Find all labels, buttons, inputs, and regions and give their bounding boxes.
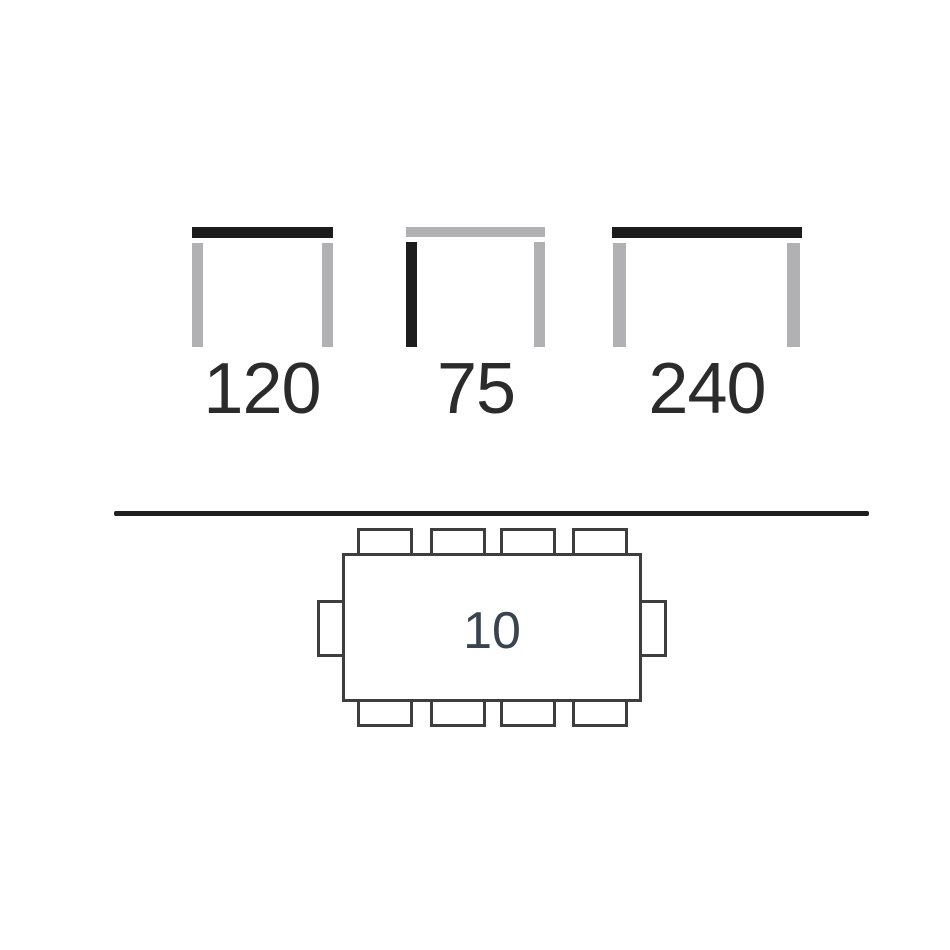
section-divider-line: [114, 511, 869, 516]
dimension-value-label: 240: [617, 353, 797, 425]
table-leg-left-icon: [406, 242, 417, 347]
tabletop-bar-icon: [612, 227, 802, 238]
table-leg-right-icon: [787, 243, 800, 347]
table-leg-left-icon: [613, 243, 626, 347]
dimension-value-label: 75: [386, 353, 566, 425]
tabletop-bar-icon: [192, 227, 333, 238]
table-leg-left-icon: [192, 243, 203, 347]
dimension-value-label: 120: [172, 353, 352, 425]
seating-capacity-label: 10: [463, 594, 521, 661]
product-dimensions-diagram: 120 75 240 10: [0, 0, 950, 950]
tabletop-bar-icon: [406, 227, 545, 237]
table-outline: 10: [342, 553, 642, 702]
table-leg-right-icon: [534, 242, 545, 347]
table-leg-right-icon: [322, 243, 333, 347]
